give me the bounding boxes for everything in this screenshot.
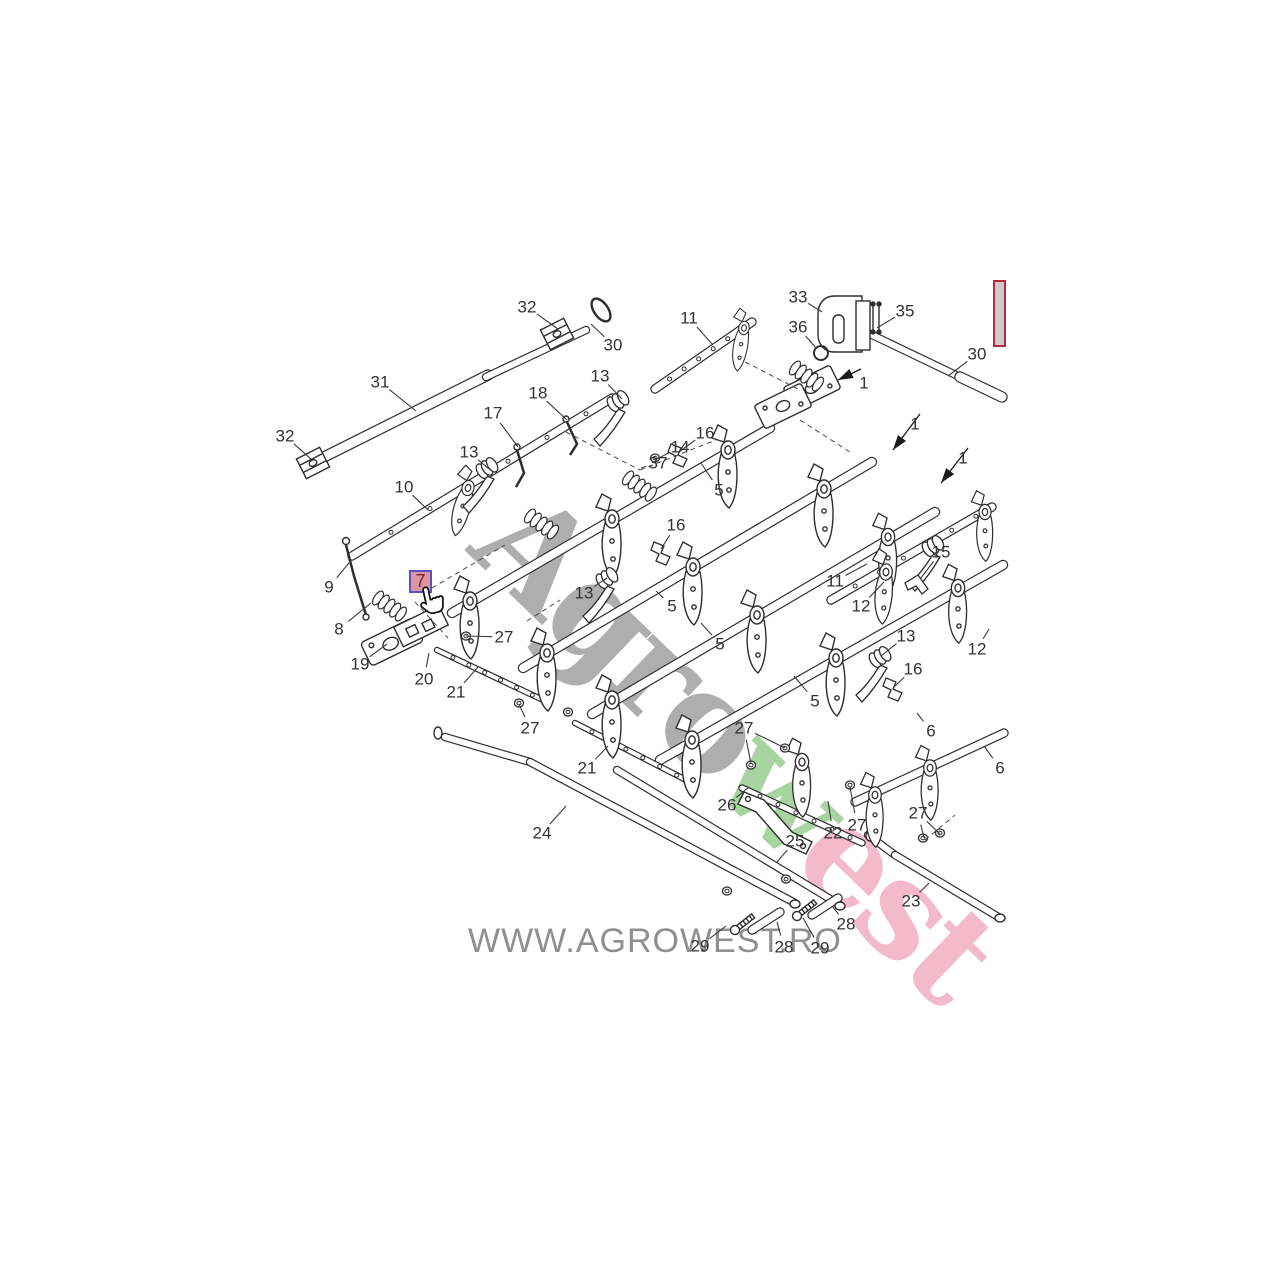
part-label: 32 (276, 427, 295, 446)
ring-36 (814, 346, 828, 360)
part-label: 27 (735, 719, 754, 738)
rod-eye (434, 727, 442, 739)
part-label: 21 (447, 683, 466, 702)
part-label: 24 (533, 824, 552, 843)
part-label: 11 (680, 309, 698, 328)
diagram-page: { "page": { "background": "#ffffff", "wi… (0, 0, 1280, 1280)
part-label: 13 (591, 367, 610, 386)
part-label: 15 (932, 543, 951, 562)
part-label: 5 (714, 481, 723, 500)
rod-eye (835, 902, 845, 910)
part-label: 35 (896, 302, 915, 321)
ring-handle-30 (588, 295, 614, 324)
part-label: 28 (775, 938, 794, 957)
part-label: 33 (789, 288, 808, 307)
part-label: 25 (786, 832, 805, 851)
part-label: 29 (811, 939, 830, 958)
part-label: 37 (649, 454, 668, 473)
part-label: 32 (518, 298, 537, 317)
part-label: 27 (909, 804, 928, 823)
part-label: 16 (904, 660, 923, 679)
part-label: 21 (578, 759, 597, 778)
part-label: 19 (351, 655, 370, 674)
direction-arrow-label: 1 (910, 415, 919, 434)
part-label: 27 (521, 719, 540, 738)
part-label: 12 (968, 640, 987, 659)
rod-eye (790, 900, 800, 908)
part-label: 6 (995, 759, 1004, 778)
part-label: 28 (837, 915, 856, 934)
part-label: 27 (495, 628, 514, 647)
part-label: 5 (810, 692, 819, 711)
part-label: 20 (415, 670, 434, 689)
part-label: 27 (848, 816, 867, 835)
part-label: 6 (926, 722, 935, 741)
part-label: 5 (715, 635, 724, 654)
part-label: 13 (460, 443, 479, 462)
part-label: 36 (789, 318, 808, 337)
part-label: 22 (824, 824, 843, 843)
part-label: 23 (902, 892, 921, 911)
part-label: 13 (575, 584, 594, 603)
part-label: 8 (334, 620, 343, 639)
rod-eye (995, 914, 1005, 922)
part-label: 14 (671, 438, 690, 457)
bracket-33 (814, 296, 881, 360)
direction-arrow-label: 1 (859, 374, 868, 393)
page-thumbnail[interactable] (993, 280, 1006, 347)
part-label: 10 (395, 478, 414, 497)
parts-diagram: 3230313211131817131033363530161437598192… (0, 0, 1280, 1280)
part-label: 30 (968, 345, 987, 364)
part-label: 16 (667, 516, 686, 535)
part-label: 17 (484, 404, 503, 423)
part-label: 13 (897, 627, 916, 646)
part-label: 18 (529, 384, 548, 403)
direction-arrow-label: 1 (958, 449, 967, 468)
part-label: 31 (371, 373, 390, 392)
part-label: 16 (696, 424, 715, 443)
part-label: 9 (324, 578, 333, 597)
part-label: 26 (718, 796, 737, 815)
part-label: 11 (826, 572, 844, 591)
part-label: 30 (604, 336, 623, 355)
part-label: 12 (852, 597, 871, 616)
part-label: 29 (691, 937, 710, 956)
part-label: 5 (667, 597, 676, 616)
